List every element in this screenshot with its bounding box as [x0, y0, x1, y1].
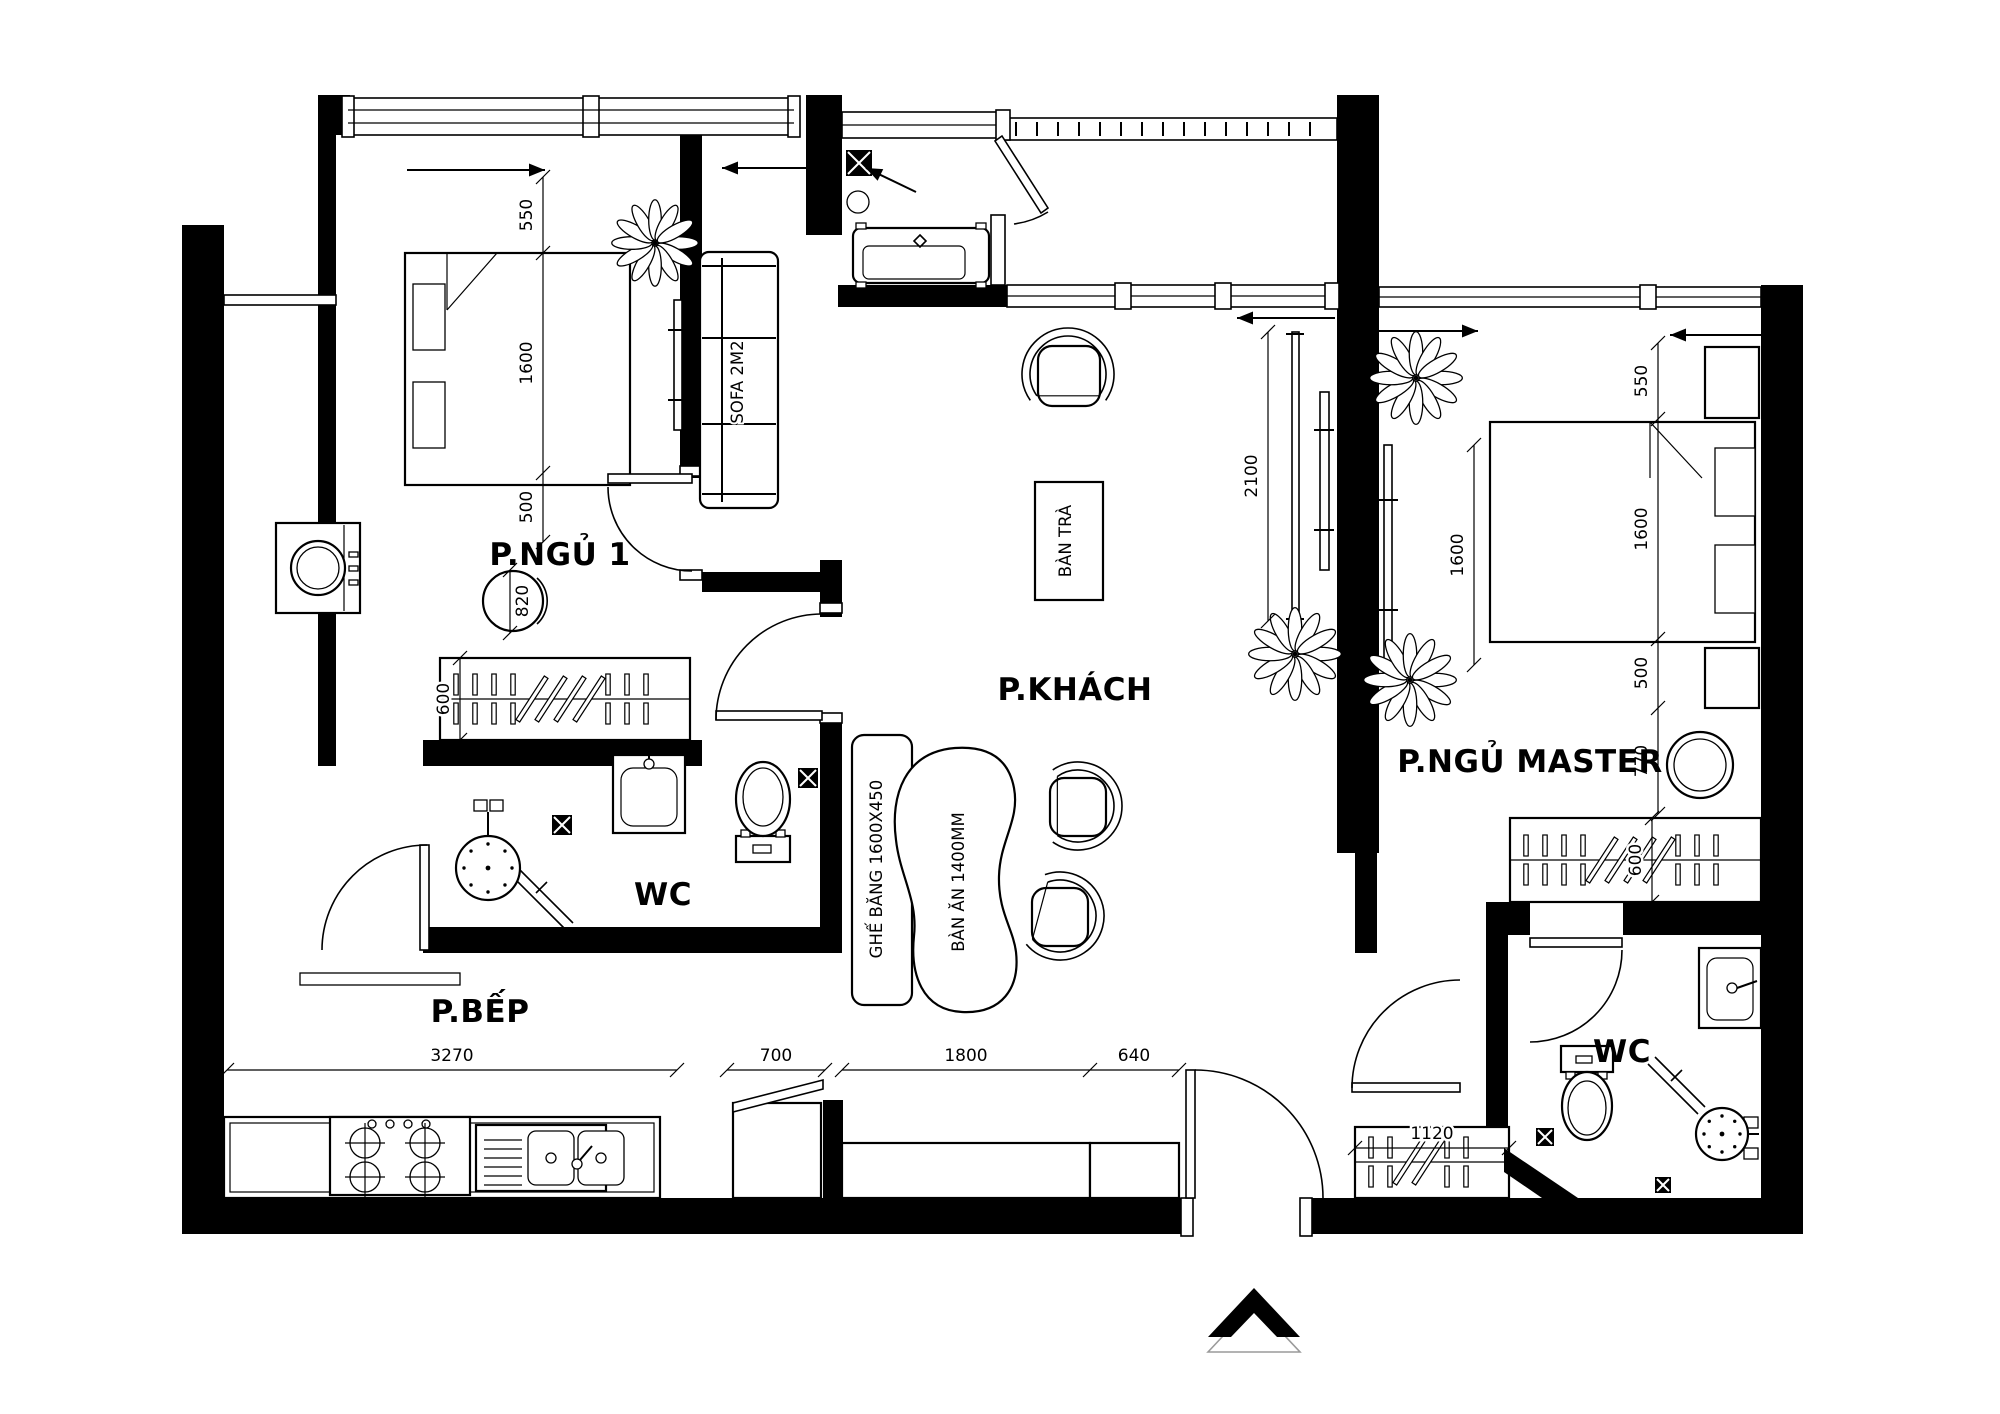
north-chevron: [1208, 1288, 1300, 1337]
slide-arrow-bedroom1-head: [529, 164, 545, 177]
dims-bedroom1-wardrobe-label: 600: [434, 683, 454, 715]
label-tea-table: BÀN TRÀ: [1056, 504, 1075, 577]
room-label-kitchen: P.BẾP: [431, 990, 530, 1030]
shower-head-common-dot: [510, 866, 513, 869]
shower-head-master-dot: [1708, 1120, 1711, 1123]
plant-center: [1414, 376, 1419, 381]
wall-living-master: [1337, 307, 1379, 853]
door-arc-wc-master: [1530, 950, 1622, 1042]
door-jamb-balcony: [991, 215, 1005, 285]
shower-head-master-dot: [1702, 1132, 1705, 1135]
wardrobe-master-hanger: [1543, 835, 1547, 856]
shower-mixer: [1744, 1148, 1758, 1159]
stove-knob: [386, 1120, 394, 1128]
wardrobe-master-hanger: [1676, 835, 1680, 856]
mullion: [1640, 285, 1656, 309]
dims-master-right-label: 500: [1632, 657, 1652, 689]
shower-glass-master: [1648, 1057, 1705, 1114]
faucet: [644, 759, 654, 769]
shower-head-master-dot: [1720, 1150, 1723, 1153]
tv-console-living: [1292, 332, 1299, 621]
shower-head-master-dot: [1708, 1145, 1711, 1148]
wall-exterior-bottom-r: [1312, 1198, 1803, 1234]
shower-head-master-dot: [1733, 1145, 1736, 1148]
cabinet-foot: [856, 282, 866, 288]
dims-cabinets-label: 1800: [944, 1046, 987, 1066]
wardrobe-bedroom1-hanger: [454, 674, 458, 695]
cabinet-foot: [976, 223, 986, 229]
wardrobe-bedroom1-hanger: [473, 674, 477, 695]
dims-cabinets-label: 640: [1118, 1046, 1150, 1066]
room-label-master: P.NGỦ MASTER: [1397, 740, 1663, 780]
dims-bedroom1-stool-label: 820: [513, 585, 533, 617]
plant-center: [1408, 678, 1413, 683]
dims-fridge-label: 700: [760, 1046, 792, 1066]
door-leaf-balcony: [995, 136, 1048, 213]
washer-slot: [349, 580, 358, 585]
shower-head-common-dot: [503, 883, 506, 886]
slide-arrow-living-l-head: [1237, 312, 1253, 325]
room-label-bedroom-1: P.NGỦ 1: [489, 533, 630, 573]
shower-head-common-dot: [486, 890, 489, 893]
wardrobe-bedroom1-hanger: [644, 703, 648, 724]
room-label-wc-common: WC: [634, 877, 692, 913]
mullion: [996, 110, 1010, 140]
sink-drain: [546, 1153, 556, 1163]
wall-exterior-right: [1761, 285, 1803, 1234]
cabinet-foot: [856, 223, 866, 229]
door-leaf-master: [1352, 1083, 1460, 1092]
toilet-button: [753, 845, 771, 853]
stove-knob: [404, 1120, 412, 1128]
shower-head-common-dot: [469, 849, 472, 852]
wardrobe-master-hanger: [1581, 835, 1585, 856]
mullion: [1215, 283, 1231, 309]
slide-arrow-master-head: [1670, 329, 1686, 342]
plant-center: [1293, 652, 1298, 657]
wall-master-step: [1355, 853, 1377, 953]
wardrobe-bedroom1-hanger: [473, 703, 477, 724]
plant-center: [653, 241, 658, 246]
wardrobe-bedroom1-hanger: [606, 703, 610, 724]
door-arc-entry: [1195, 1070, 1323, 1198]
door-arc-corridor: [322, 845, 427, 950]
floor-drain-round: [847, 191, 869, 213]
shower-mixer: [474, 800, 487, 811]
shower-head-common-dot: [486, 842, 489, 845]
shower-head-common-dot: [462, 866, 465, 869]
wall-exterior-left: [182, 225, 224, 1234]
dims-hall-wardrobe-label: 1120: [1410, 1124, 1453, 1144]
door-arc-wc-common: [716, 614, 822, 720]
window-bedroom1: [348, 98, 794, 135]
wall-chamfer-wc-master: [1504, 1148, 1578, 1198]
wardrobe-master-hanger: [1695, 835, 1699, 856]
stool-master: [1674, 739, 1726, 791]
wardrobe-master-hanger: [1524, 864, 1528, 885]
wardrobe-bedroom1-hanger: [492, 674, 496, 695]
door-jamb-entry-left: [1181, 1198, 1193, 1236]
mullion: [1115, 283, 1131, 309]
door-arc-balcony: [1014, 212, 1048, 224]
seat-dining-chair: [1032, 888, 1088, 946]
door-jamb-entry-right: [1300, 1198, 1312, 1236]
mullion: [788, 96, 800, 137]
faucet: [572, 1159, 582, 1169]
seat-armchair: [1038, 346, 1100, 406]
shower-head-master-dot: [1733, 1120, 1736, 1123]
cabinet-640: [1090, 1143, 1179, 1198]
wardrobe-bedroom1-hanger: [625, 674, 629, 695]
floor-plan-page: 5501600500820600210016005501600500770600…: [0, 0, 2000, 1414]
room-label-living: P.KHÁCH: [998, 672, 1153, 708]
pillow: [1715, 448, 1755, 516]
wall-wc-bottom: [423, 927, 842, 953]
toilet-seat: [743, 768, 783, 826]
wardrobe-hall-hanger: [1369, 1166, 1373, 1187]
washer-slot: [349, 566, 358, 571]
door-leaf-wc-common: [716, 711, 822, 720]
door-leaf-corridor: [420, 845, 429, 950]
shower-head-common-dot: [503, 849, 506, 852]
label-bench: GHẾ BĂNG 1600X450: [865, 780, 886, 959]
room-label-wc-master: WC: [1593, 1034, 1651, 1070]
slide-arrow-balcony-head: [722, 162, 738, 175]
tv-panel-master: [1384, 445, 1392, 665]
tv-panel-bedroom1: [674, 300, 682, 430]
dims-master-tv-label: 1600: [1448, 533, 1468, 576]
stove-knob: [422, 1120, 430, 1128]
shelf-corridor: [300, 973, 460, 985]
mullion: [583, 96, 599, 137]
door-jamb-wc-top: [820, 603, 842, 613]
pillow: [413, 284, 445, 350]
seat-dining-chair: [1050, 778, 1106, 836]
nightstand-master-2: [1705, 648, 1759, 708]
shower-glass-common: [512, 869, 573, 930]
dims-master-right-label: 1600: [1632, 507, 1652, 550]
wardrobe-master-hanger: [1562, 864, 1566, 885]
wardrobe-bedroom1-hanger: [606, 674, 610, 695]
shower-head-master-center: [1720, 1132, 1725, 1137]
door-leaf-wc-master: [1530, 938, 1622, 947]
wall-wc-right-lower: [820, 723, 842, 953]
door-leaf-bedroom1: [608, 474, 692, 483]
wall-balcony-column: [1337, 95, 1379, 307]
nightstand-master-1: [1705, 347, 1759, 418]
shower-head-master-dot: [1738, 1132, 1741, 1135]
dims-bedroom1-left-label: 1600: [517, 341, 537, 384]
tv-panel-living: [1320, 392, 1329, 570]
mullion: [342, 96, 354, 137]
wardrobe-hall-hanger: [1388, 1166, 1392, 1187]
toilet-button: [1576, 1056, 1592, 1063]
dims-master-right-label: 550: [1632, 365, 1652, 397]
shower-head-common-dot: [469, 883, 472, 886]
wardrobe-bedroom1-hanger: [644, 674, 648, 695]
wardrobe-bedroom1-hanger: [492, 703, 496, 724]
shower-head-master-dot: [1720, 1114, 1723, 1117]
wardrobe-master-hanger: [1581, 864, 1585, 885]
dims-kitchen-counter-label: 3270: [430, 1046, 473, 1066]
wardrobe-bedroom1-hanger: [454, 703, 458, 724]
wall-b1-balcony-pier: [806, 95, 842, 235]
washer-slot: [349, 552, 358, 557]
wall-mwc-top-left: [1486, 902, 1530, 935]
faucet: [1727, 983, 1737, 993]
mullion: [1325, 283, 1339, 309]
wall-b1-right-upper: [680, 117, 702, 302]
door-jamb-wc-bottom: [820, 713, 842, 723]
duct-ledge: [224, 295, 336, 305]
wall-b1-left: [318, 115, 336, 766]
toilet-seat: [1568, 1081, 1606, 1135]
wardrobe-master-hanger: [1676, 864, 1680, 885]
wall-exterior-bottom-l: [182, 1198, 1183, 1234]
shower-mixer: [490, 800, 503, 811]
wardrobe-hall-hanger: [1445, 1166, 1449, 1187]
dims-master-wardrobe-label: 600: [1626, 844, 1646, 876]
wall-b1-right-mid: [680, 302, 702, 478]
label-dining-table: BÀN ĂN 1400MM: [949, 812, 968, 952]
wardrobe-bedroom1-hanger: [511, 674, 515, 695]
slide-arrow-living-r-head: [1462, 325, 1478, 338]
wardrobe-hall-hanger: [1464, 1166, 1468, 1187]
wardrobe-bedroom1-hanger: [511, 703, 515, 724]
pillow: [1715, 545, 1755, 613]
fridge: [733, 1103, 821, 1198]
wall-mwc-top-right: [1623, 902, 1761, 935]
pillow: [413, 382, 445, 448]
wardrobe-master-hanger: [1543, 864, 1547, 885]
washer-drum: [297, 547, 339, 589]
railing-balcony: [1007, 118, 1337, 140]
shower-head-common-center: [486, 866, 491, 871]
dims-bedroom1-left-label: 500: [517, 491, 537, 523]
stove-knob: [368, 1120, 376, 1128]
floor-plan-drawing: 5501600500820600210016005501600500770600…: [0, 0, 2000, 1414]
cabinet-foot: [976, 282, 986, 288]
wall-fridge-stub: [823, 1100, 843, 1198]
cabinet-1800: [842, 1143, 1090, 1198]
sink-drain: [596, 1153, 606, 1163]
door-arc-master: [1352, 980, 1460, 1088]
wardrobe-master-hanger: [1562, 835, 1566, 856]
wardrobe-bedroom1-hanger: [625, 703, 629, 724]
label-sofa: SOFA 2M2: [728, 340, 747, 423]
wardrobe-master-hanger: [1695, 864, 1699, 885]
door-leaf-entry: [1186, 1070, 1195, 1198]
dims-living-tv-label: 2100: [1242, 454, 1262, 497]
wardrobe-master-hanger: [1714, 864, 1718, 885]
dims-bedroom1-left-label: 550: [517, 199, 537, 231]
wardrobe-master-hanger: [1714, 835, 1718, 856]
wardrobe-master-hanger: [1524, 835, 1528, 856]
